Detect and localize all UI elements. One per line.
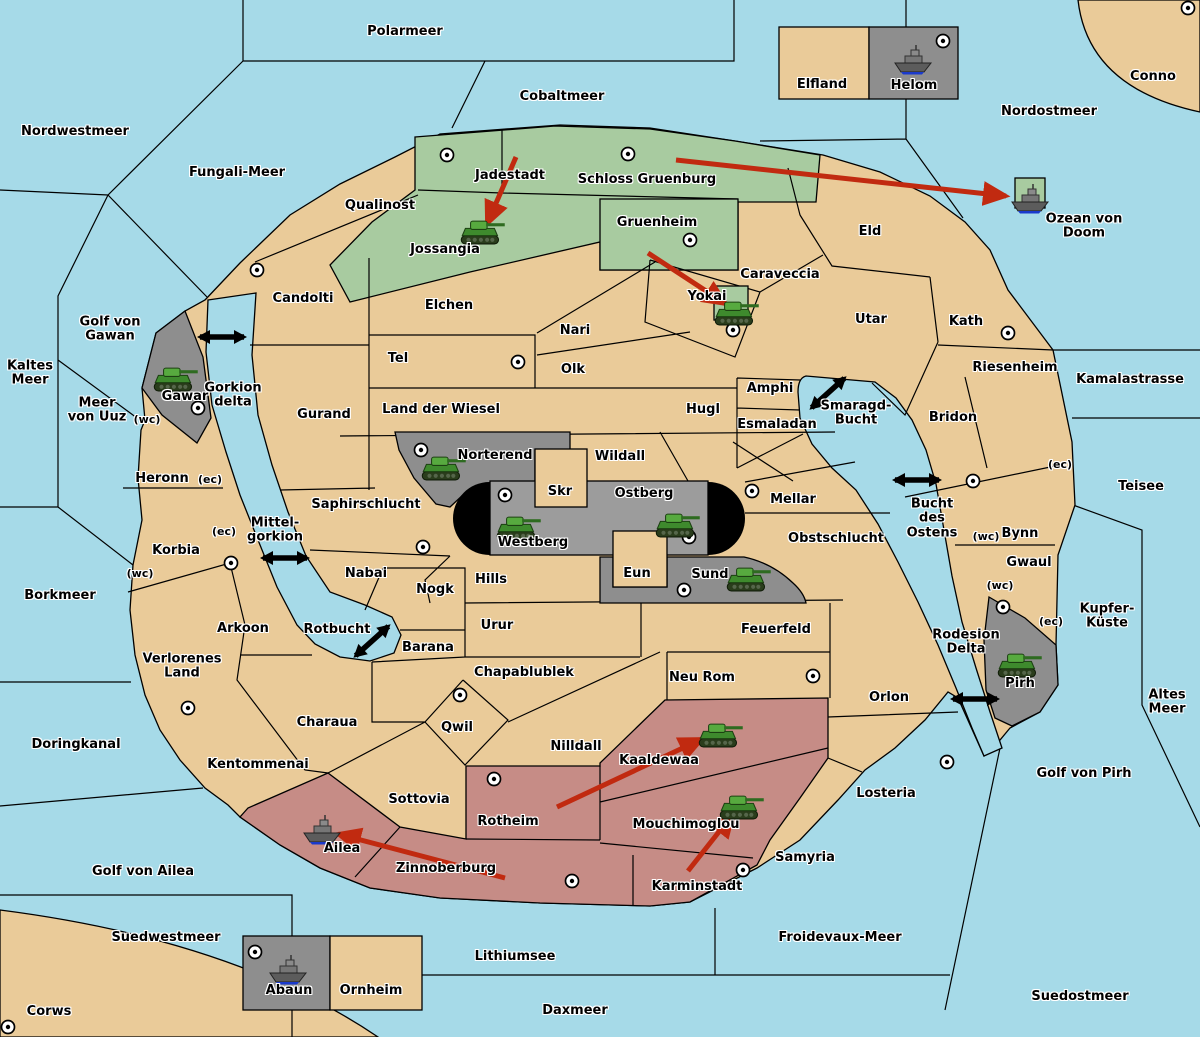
box-elfland[interactable] xyxy=(779,27,869,99)
supply-center-dot xyxy=(225,557,238,570)
region-shape-gruenheim[interactable] xyxy=(600,199,738,270)
supply-center-dot xyxy=(251,264,264,277)
supply-center-dot xyxy=(1182,2,1195,15)
supply-center-dot xyxy=(807,670,820,683)
supply-center-dot xyxy=(727,324,740,337)
region-shape-skr[interactable] xyxy=(535,449,587,507)
supply-center-dot xyxy=(454,689,467,702)
supply-center-dot xyxy=(737,864,750,877)
supply-center-dot xyxy=(2,1021,15,1034)
supply-center-dot xyxy=(941,756,954,769)
supply-center-dot xyxy=(488,773,501,786)
region-shape-eun[interactable] xyxy=(613,531,667,587)
supply-center-dot xyxy=(415,444,428,457)
supply-center-dot xyxy=(499,489,512,502)
game-map[interactable]: PolarmeerCobaltmeerNordostmeerConnoNordw… xyxy=(0,0,1200,1037)
supply-center-dot xyxy=(937,35,950,48)
supply-center-dot xyxy=(182,702,195,715)
map-canvas[interactable] xyxy=(0,0,1200,1037)
box-ornheim[interactable] xyxy=(330,936,422,1010)
supply-center-dot xyxy=(417,541,430,554)
supply-center-dot xyxy=(997,601,1010,614)
supply-center-dot xyxy=(566,875,579,888)
supply-center-dot xyxy=(441,149,454,162)
supply-center-dot xyxy=(746,485,759,498)
supply-center-dot xyxy=(1002,327,1015,340)
supply-center-dot xyxy=(622,148,635,161)
supply-center-dot xyxy=(967,475,980,488)
supply-center-dot xyxy=(512,356,525,369)
supply-center-dot xyxy=(684,234,697,247)
supply-center-dot xyxy=(678,584,691,597)
supply-center-dot xyxy=(249,946,262,959)
supply-center-dot xyxy=(192,402,205,415)
